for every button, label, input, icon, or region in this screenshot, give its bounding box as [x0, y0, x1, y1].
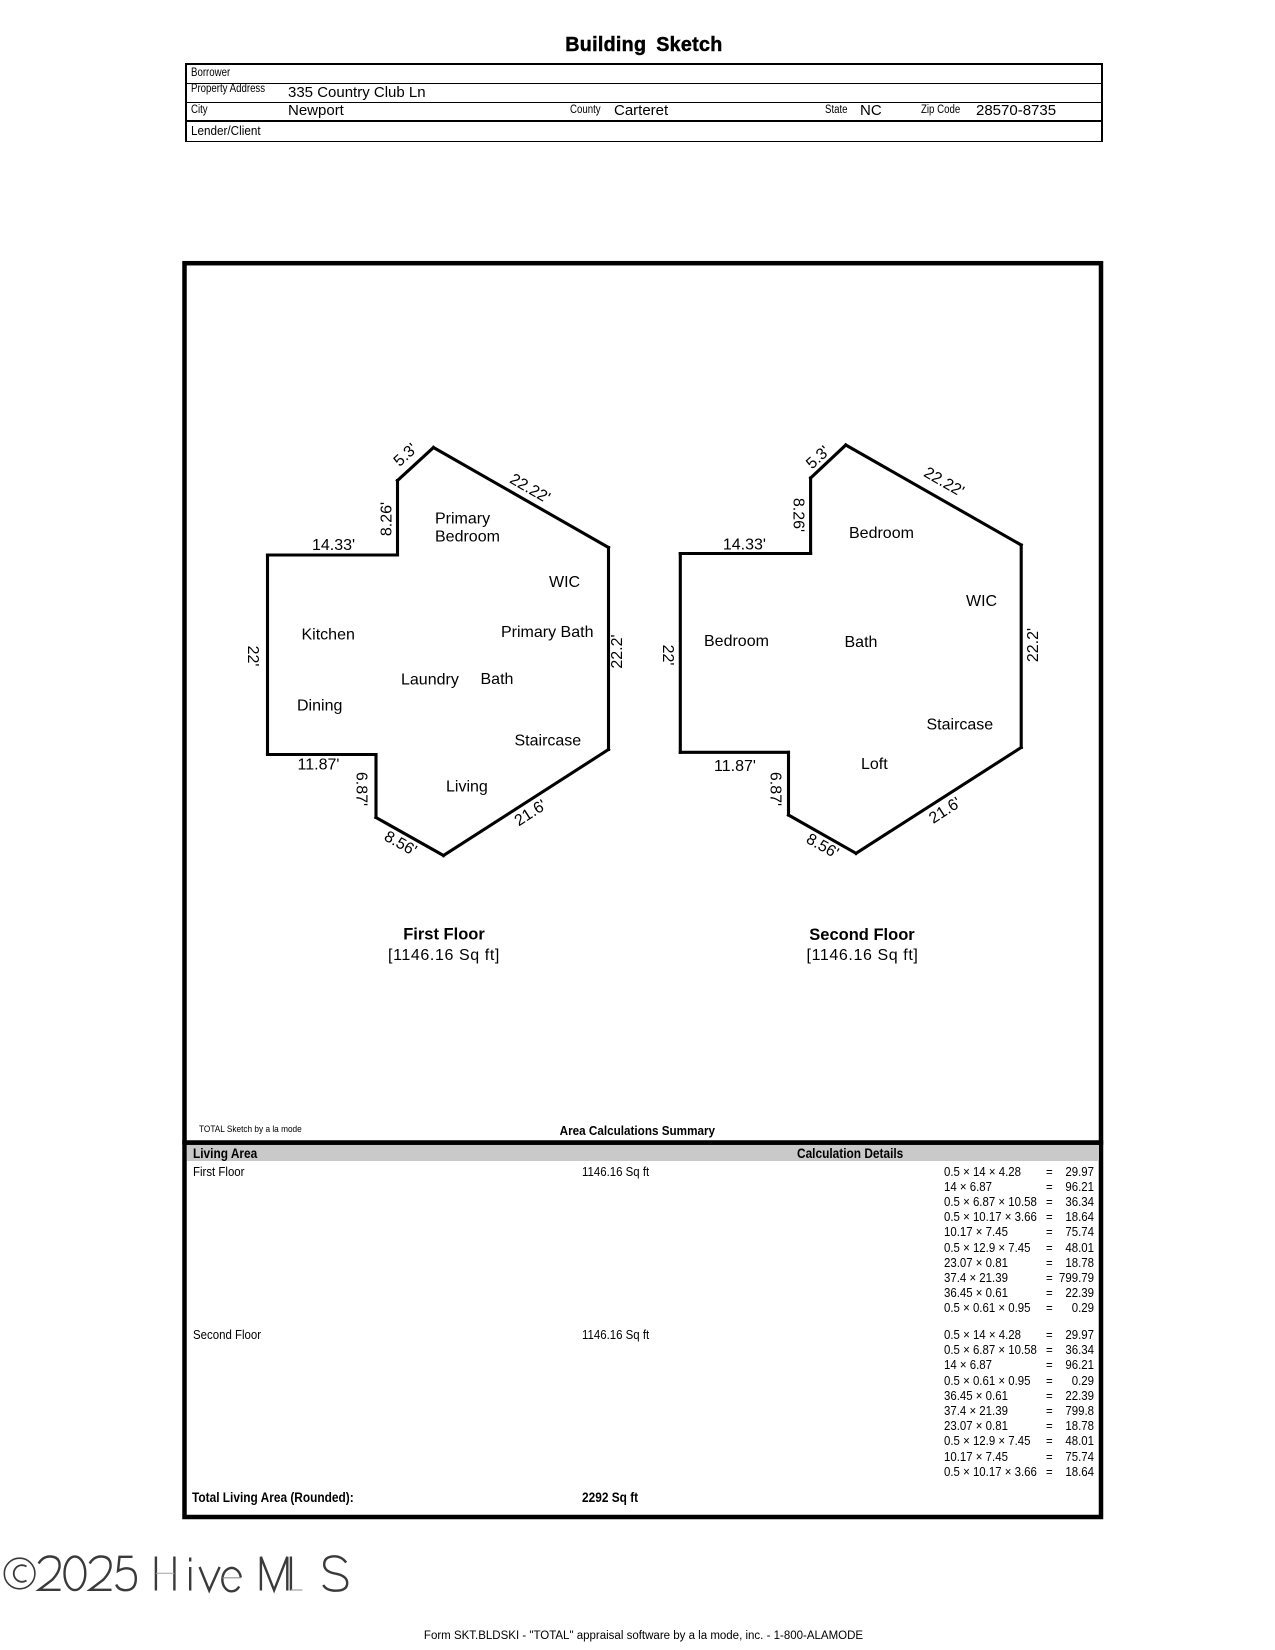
svg-text:Bath: Bath	[481, 671, 514, 688]
svg-text:Dining: Dining	[297, 698, 342, 715]
svg-text:WIC: WIC	[966, 593, 997, 610]
svg-text:Laundry: Laundry	[401, 672, 459, 689]
svg-text:Primary Bath: Primary Bath	[501, 624, 593, 641]
svg-text:[1146.16 Sq ft]: [1146.16 Sq ft]	[807, 947, 919, 964]
svg-text:First Floor: First Floor	[403, 926, 485, 944]
svg-text:21.6': 21.6'	[512, 797, 550, 830]
svg-text:Second Floor: Second Floor	[809, 926, 915, 944]
svg-text:[1146.16 Sq ft]: [1146.16 Sq ft]	[388, 947, 500, 964]
svg-text:22': 22'	[659, 645, 676, 666]
svg-text:8.26': 8.26'	[790, 498, 807, 532]
svg-text:22.2': 22.2'	[1025, 628, 1042, 662]
svg-text:21.6': 21.6'	[926, 795, 964, 828]
svg-text:22.2': 22.2'	[609, 634, 626, 668]
svg-text:Staircase: Staircase	[515, 733, 582, 750]
svg-text:Living: Living	[446, 779, 488, 796]
svg-text:Bedroom: Bedroom	[849, 525, 914, 542]
svg-text:8.26': 8.26'	[379, 502, 396, 536]
svg-text:14.33': 14.33'	[312, 537, 355, 554]
svg-text:6.87': 6.87'	[767, 772, 784, 806]
svg-text:11.87': 11.87'	[714, 758, 756, 775]
svg-text:Bedroom: Bedroom	[435, 529, 500, 546]
svg-text:Staircase: Staircase	[927, 717, 994, 734]
svg-text:WIC: WIC	[549, 574, 580, 591]
svg-text:5.3': 5.3'	[803, 443, 833, 473]
svg-text:6.87': 6.87'	[353, 772, 370, 806]
svg-text:Primary: Primary	[435, 511, 490, 528]
svg-text:14.33': 14.33'	[723, 537, 766, 554]
svg-text:22.22': 22.22'	[921, 464, 967, 500]
svg-text:22': 22'	[244, 646, 261, 667]
svg-text:Loft: Loft	[861, 756, 888, 773]
svg-text:Bedroom: Bedroom	[704, 633, 769, 650]
svg-text:11.87': 11.87'	[298, 757, 340, 774]
svg-text:Kitchen: Kitchen	[302, 627, 355, 644]
svg-text:Bath: Bath	[845, 634, 878, 651]
svg-text:5.3': 5.3'	[391, 441, 421, 471]
